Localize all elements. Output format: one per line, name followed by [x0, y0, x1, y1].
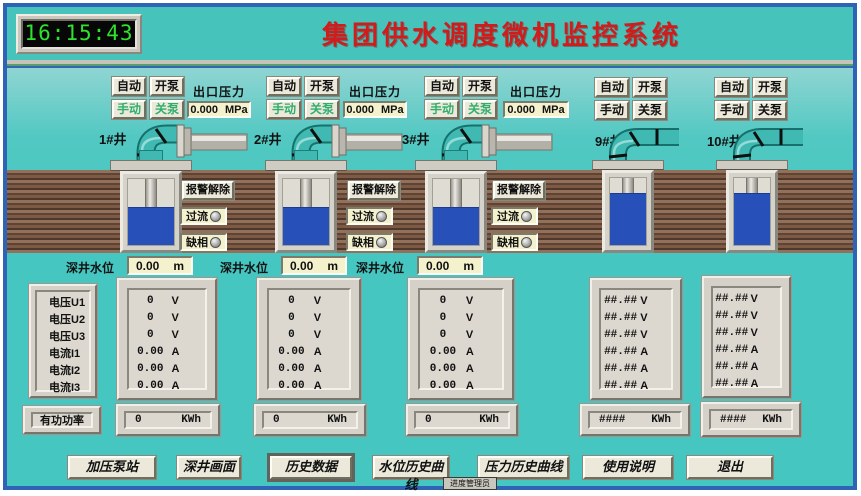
auto-button[interactable]: 自动 [112, 77, 146, 96]
main-frame: 16:15:43 集团供水调度微机监控系统 自动 开泵 手动 关泵 自动 开泵 … [3, 3, 857, 490]
well-shaft [733, 177, 771, 246]
measurement-value: ##.## [713, 327, 751, 339]
measurement-value: 0 [420, 312, 466, 324]
label-current-i3: 电流I3 [37, 380, 89, 397]
measurement-value: ##.## [601, 295, 640, 307]
pressure-value-box: 0.000MPa [503, 101, 569, 118]
energy-unit: KWh [327, 414, 347, 426]
measurement-value: ##.## [601, 329, 640, 341]
well-cap [265, 160, 347, 171]
well-cap [110, 160, 192, 171]
phase-loss-indicator: 缺相 [180, 233, 227, 251]
measurement-unit: V [640, 295, 671, 307]
measurement-value: 0.00 [129, 380, 172, 392]
overcurrent-indicator: 过流 [346, 207, 393, 225]
station-10-energy: #### KWh [701, 402, 801, 437]
pump-on-button[interactable]: 开泵 [463, 77, 497, 96]
well-label: 1#井 [99, 129, 126, 148]
measurement-unit: V [751, 310, 780, 322]
measurement-unit: A [640, 346, 671, 358]
measurement-unit: A [314, 363, 349, 375]
phase-loss-indicator: 缺相 [346, 233, 393, 251]
measurement-unit: V [466, 312, 502, 324]
overcurrent-lamp [376, 211, 387, 222]
energy-value: 0 [425, 414, 432, 426]
measurement-unit: A [640, 380, 671, 392]
nav-exit-button[interactable]: 退出 [687, 456, 773, 479]
well-cap [592, 160, 664, 170]
station-9-controls: 自动 开泵 手动 关泵 [595, 78, 667, 120]
measurement-value: 0.00 [420, 346, 466, 358]
station-1-pressure: 出口压力 0.000MPa [185, 83, 253, 100]
auto-button[interactable]: 自动 [267, 77, 301, 96]
station-10-measurements: ##.##V ##.##V ##.##V ##.##A ##.##A ##.##… [702, 276, 791, 398]
label-current-i1: 电流I1 [37, 346, 89, 363]
pump-on-button[interactable]: 开泵 [633, 78, 667, 97]
well-tank [602, 170, 654, 253]
measurement-value: 0 [269, 295, 314, 307]
measurement-value: ##.## [601, 363, 640, 375]
water-level [734, 193, 770, 245]
well-tank [120, 171, 182, 253]
measurement-unit: V [172, 312, 205, 324]
measurement-value: ##.## [713, 344, 751, 356]
measurement-unit: A [640, 363, 671, 375]
well-shaft [282, 178, 330, 246]
measurement-value: 0.00 [129, 346, 172, 358]
measurement-unit: A [172, 363, 205, 375]
pressure-label: 出口压力 [501, 83, 571, 100]
water-level [128, 207, 174, 245]
active-power-panel: 有功功率 [23, 406, 101, 434]
measurement-value: 0 [420, 329, 466, 341]
water-level [610, 193, 646, 245]
station-1-energy: 0 KWh [116, 404, 220, 436]
measurement-value: ##.## [601, 380, 640, 392]
phase-loss-lamp [521, 237, 532, 248]
measurement-unit: A [172, 380, 205, 392]
water-level [433, 207, 479, 245]
auto-button[interactable]: 自动 [595, 78, 629, 97]
measurement-value: ##.## [601, 312, 640, 324]
station-10-controls: 自动 开泵 手动 关泵 [715, 78, 787, 120]
nav-user-manual-button[interactable]: 使用说明 [583, 456, 673, 479]
measurement-unit: V [466, 329, 502, 341]
measurement-value: ##.## [713, 378, 751, 390]
overcurrent-indicator: 过流 [491, 207, 538, 225]
auto-button[interactable]: 自动 [715, 78, 749, 97]
measurement-unit: V [751, 293, 780, 305]
overcurrent-lamp [521, 211, 532, 222]
overcurrent-indicator: 过流 [180, 207, 227, 225]
water-level [283, 207, 329, 245]
station-3-pressure: 出口压力 0.000MPa [501, 83, 571, 100]
phase-loss-lamp [376, 237, 387, 248]
well-cap [716, 160, 788, 170]
measurement-value: 0.00 [269, 346, 314, 358]
nav-pressure-history-button[interactable]: 压力历史曲线 [478, 456, 569, 479]
well-label: 2#井 [254, 129, 281, 148]
active-power-label: 有功功率 [31, 412, 93, 428]
energy-unit: KWh [762, 414, 782, 426]
measurement-unit: A [751, 344, 780, 356]
measurement-value: 0 [269, 329, 314, 341]
measurement-unit: A [466, 346, 502, 358]
well-tank [425, 171, 487, 253]
level-label: 深井水位 [356, 259, 404, 276]
nav-water-level-history-button[interactable]: 水位历史曲线 [373, 456, 449, 479]
overcurrent-lamp [210, 211, 221, 222]
label-voltage-u1: 电压U1 [37, 295, 89, 312]
measurement-unit: A [466, 380, 502, 392]
station-1-controls: 自动 开泵 手动 关泵 [112, 77, 184, 119]
measurement-unit: V [466, 295, 502, 307]
station-9-energy: #### KWh [580, 404, 690, 436]
auto-button[interactable]: 自动 [425, 77, 459, 96]
pressure-value-box: 0.000MPa [187, 101, 251, 118]
measurement-value: ##.## [713, 361, 751, 373]
measurement-unit: A [466, 363, 502, 375]
digital-clock: 16:15:43 [21, 19, 137, 49]
pressure-label: 出口压力 [185, 83, 253, 100]
measurement-unit: V [314, 329, 349, 341]
measurement-labels-panel: 电压U1 电压U2 电压U3 电流I1 电流I2 电流I3 [29, 284, 97, 398]
measurement-value: 0.00 [129, 363, 172, 375]
well-label: 3#井 [402, 129, 429, 148]
scada-screen: { "header": {"clock": "16:15:43", "title… [0, 0, 861, 496]
measurement-value: 0 [129, 312, 172, 324]
station-2-controls: 自动 开泵 手动 关泵 [267, 77, 339, 119]
alarm-clear-button[interactable]: 报警解除 [348, 181, 400, 200]
measurement-unit: V [640, 312, 671, 324]
measurement-value: 0 [269, 312, 314, 324]
energy-value: #### [599, 414, 625, 426]
station-3-measurements: 0V 0V 0V 0.00A 0.00A 0.00A [408, 278, 514, 400]
measurement-value: ##.## [713, 310, 751, 322]
well-tank [726, 170, 778, 253]
measurement-value: 0.00 [420, 363, 466, 375]
label-current-i2: 电流I2 [37, 363, 89, 380]
energy-unit: KWh [479, 414, 499, 426]
level-label: 深井水位 [220, 259, 268, 276]
measurement-unit: V [751, 327, 780, 339]
label-voltage-u3: 电压U3 [37, 329, 89, 346]
level-value-box: 0.00m [417, 256, 483, 275]
pressure-value-box: 0.000MPa [343, 101, 407, 118]
pump-on-button[interactable]: 开泵 [150, 77, 184, 96]
measurement-unit: A [314, 346, 349, 358]
nav-deep-well-screen-button[interactable]: 深井画面 [177, 456, 241, 479]
station-3-energy: 0 KWh [406, 404, 518, 436]
well-cap [415, 160, 497, 171]
station-1-measurements: 0V 0V 0V 0.00A 0.00A 0.00A [117, 278, 217, 400]
level-value-box: 0.00m [281, 256, 347, 275]
nav-history-data-button[interactable]: 历史数据 [270, 456, 352, 479]
measurement-value: 0.00 [269, 380, 314, 392]
phase-loss-indicator: 缺相 [491, 233, 538, 251]
station-2-energy: 0 KWh [254, 404, 366, 436]
measurement-unit: A [751, 378, 780, 390]
energy-value: #### [720, 414, 746, 426]
measurement-unit: A [314, 380, 349, 392]
page-title: 集团供水调度微机监控系统 [157, 7, 847, 60]
energy-unit: KWh [651, 414, 671, 426]
measurement-value: 0 [129, 295, 172, 307]
alarm-clear-button[interactable]: 报警解除 [182, 181, 234, 200]
station-3-controls: 自动 开泵 手动 关泵 [425, 77, 497, 119]
level-label: 深井水位 [66, 259, 114, 276]
measurement-value: 0.00 [269, 363, 314, 375]
clock-bezel: 16:15:43 [16, 14, 142, 54]
measurement-value: 0.00 [420, 380, 466, 392]
label-voltage-u2: 电压U2 [37, 312, 89, 329]
station-2-pressure: 出口压力 0.000MPa [341, 83, 409, 100]
measurement-value: 0 [129, 329, 172, 341]
well-shaft [432, 178, 480, 246]
taskbar-item[interactable]: 进度管理员 [443, 477, 497, 490]
well-shaft [609, 177, 647, 246]
energy-value: 0 [273, 414, 280, 426]
measurement-unit: V [172, 295, 205, 307]
measurement-unit: V [640, 329, 671, 341]
well-shaft [127, 178, 175, 246]
measurement-unit: V [172, 329, 205, 341]
measurement-value: ##.## [601, 346, 640, 358]
station-9-measurements: ##.##V ##.##V ##.##V ##.##A ##.##A ##.##… [590, 278, 682, 400]
pressure-label: 出口压力 [341, 83, 409, 100]
measurement-value: ##.## [713, 293, 751, 305]
level-value-box: 0.00m [127, 256, 193, 275]
energy-value: 0 [135, 414, 142, 426]
pump-on-button[interactable]: 开泵 [753, 78, 787, 97]
nav-pressure-pump-station-button[interactable]: 加压泵站 [68, 456, 156, 479]
energy-unit: KWh [181, 414, 201, 426]
phase-loss-lamp [210, 237, 221, 248]
alarm-clear-button[interactable]: 报警解除 [493, 181, 545, 200]
measurement-unit: A [172, 346, 205, 358]
measurement-unit: V [314, 295, 349, 307]
measurement-unit: A [751, 361, 780, 373]
measurement-unit: V [314, 312, 349, 324]
well-tank [275, 171, 337, 253]
station-2-measurements: 0V 0V 0V 0.00A 0.00A 0.00A [257, 278, 361, 400]
measurement-value: 0 [420, 295, 466, 307]
pump-on-button[interactable]: 开泵 [305, 77, 339, 96]
